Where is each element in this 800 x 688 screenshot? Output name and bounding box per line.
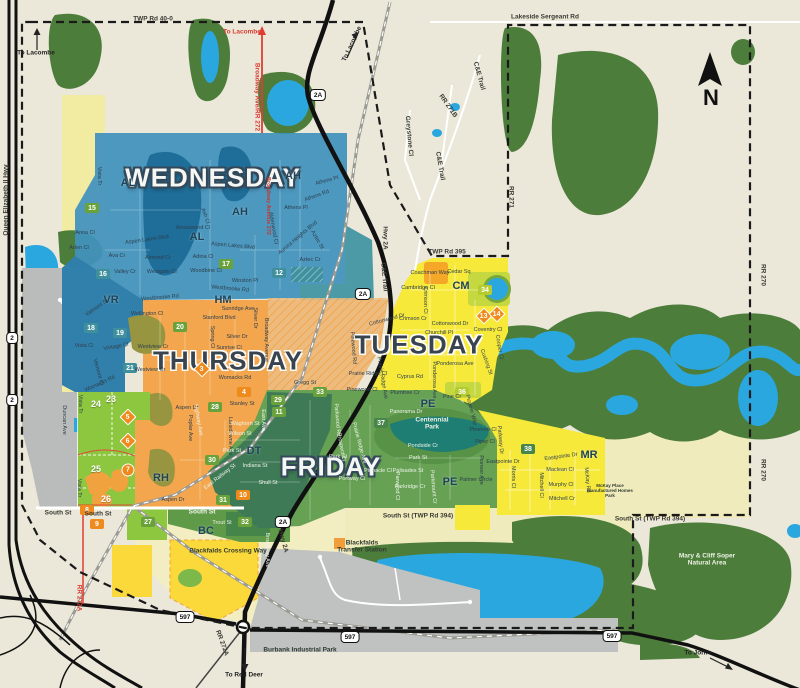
road-label: Broadway Ave/RR 272 — [254, 63, 261, 131]
street-label: Athens Pl — [315, 175, 339, 187]
road-label: South St — [189, 509, 216, 516]
street-label: Aspen Lakes Blvd — [125, 234, 169, 246]
zone-number-marker: 20 — [173, 322, 187, 332]
street-label: Valley Cr — [114, 269, 136, 275]
street-label: Stanford Blvd — [202, 315, 235, 321]
highway-shield: 597 — [341, 631, 360, 643]
street-label: Indiana St — [243, 463, 268, 469]
direction-label: To Red Deer — [225, 672, 263, 679]
street-label: Portway Cl — [339, 476, 366, 482]
place-label: Blackfalds Crossing Way — [189, 547, 266, 554]
street-label: Arlen Cl — [69, 245, 89, 251]
zone-number-marker: 38 — [521, 444, 535, 454]
zone-number-marker: 15 — [85, 203, 99, 213]
street-label: Broadway Avenue — [263, 318, 269, 362]
street-label: Silver Dr — [252, 307, 258, 328]
zone-number-marker: 28 — [208, 402, 222, 412]
street-label: Spring Cl — [209, 326, 215, 349]
road-label: C&E Trail — [472, 61, 486, 91]
zone-number-marker: 5 — [120, 409, 137, 426]
street-label: Cottonwood Dr — [432, 321, 469, 327]
street-label: Pioneer Way — [464, 394, 478, 426]
street-label: Coventry Cl — [474, 327, 503, 333]
street-label: Vintage Cl — [103, 342, 129, 352]
area-code-label: BC — [198, 525, 214, 537]
street-label: Parkway Dr — [496, 426, 504, 455]
compass-north-label: N — [703, 85, 719, 111]
street-label: Trout St — [212, 520, 231, 526]
street-label: Pine Cr — [443, 394, 461, 400]
street-label: Aspen Dr — [162, 497, 185, 503]
zone-number-marker-text: 5 — [126, 414, 130, 421]
zone-number-marker: 25 — [89, 464, 103, 474]
road-label: South St (TWP Rd 394) — [383, 513, 453, 520]
street-label: Westview Cr — [135, 367, 166, 373]
street-label: East Ave — [260, 409, 266, 431]
zone-number-marker: 32 — [238, 517, 252, 527]
zone-number-marker: 10 — [236, 490, 250, 500]
street-label: Sunridge Ave — [222, 306, 255, 312]
street-label: Highway Ave — [192, 404, 203, 436]
street-label: Waghorn St — [231, 421, 260, 427]
street-label: Pinetree Cl — [469, 427, 496, 433]
zone-number-marker-text: 14 — [493, 311, 501, 318]
place-label: Centennial Park — [409, 417, 455, 432]
area-code-label: AH — [285, 170, 301, 182]
area-code-label: AL — [121, 177, 136, 189]
street-label: Gregg St — [294, 380, 316, 386]
zone-number-marker-text: 13 — [480, 313, 488, 320]
street-label: Silver Dr — [226, 334, 247, 340]
zone-number-marker: 9 — [90, 519, 104, 529]
road-label: Greystone Cl — [404, 116, 415, 157]
day-zone-label: WEDNESDAY — [125, 163, 301, 194]
zone-number-marker: 6 — [120, 433, 137, 450]
street-label: Mitchell Cr — [549, 496, 575, 502]
street-label: Broadway Avenue 272 — [265, 177, 271, 235]
street-label: Parwood Cl — [394, 472, 400, 500]
street-label: Ava Cr — [109, 253, 126, 259]
street-label: Athens Pl — [284, 205, 308, 211]
area-code-label: CM — [452, 280, 469, 292]
street-label: Woodbine Cl — [190, 268, 221, 274]
road-label: RR 270 — [760, 459, 767, 481]
street-label: Westbrooke Rd — [141, 293, 179, 302]
zone-number-marker: 24 — [89, 399, 103, 409]
highway-shield: 597 — [176, 611, 195, 623]
street-label: Cooper Cl — [494, 334, 504, 359]
road-label: RR 271B — [437, 93, 458, 119]
area-code-label: AL — [190, 231, 205, 243]
zone-number-marker: 34 — [478, 285, 492, 295]
street-label: Cushing St — [479, 348, 494, 375]
area-code-label: PE — [443, 476, 458, 488]
place-label: Mary & Cliff Soper Natural Area — [671, 553, 743, 568]
zone-number-marker: 37 — [374, 418, 388, 428]
street-label: Poplar Ave — [187, 415, 193, 442]
highway-shield: 2 — [6, 332, 18, 344]
street-label: Eastpointe Dr — [486, 459, 519, 465]
street-label: Sunrise Cl — [216, 345, 241, 351]
street-label: Mitchell Cl — [538, 472, 544, 497]
highway-shield: 2A — [310, 89, 326, 101]
street-label: Athens Rd — [304, 189, 330, 203]
street-label: Plumtree Cr — [390, 390, 419, 396]
street-label: Stanley St — [229, 401, 254, 407]
road-label: C&E Trail — [379, 262, 388, 291]
place-label: Blackfalds Transfer Station — [336, 540, 388, 555]
street-label: Cambridge Cl — [401, 285, 435, 291]
zone-number-marker: 14 — [489, 306, 506, 323]
highway-shield: 2A — [355, 288, 371, 300]
street-label: Piper Cl — [475, 439, 495, 445]
street-label: Panorama Dr — [390, 409, 423, 415]
road-label: C&E Trail — [434, 151, 446, 181]
street-label: Ponderosa Ave — [431, 361, 437, 398]
street-label: Ash Cl — [199, 207, 210, 224]
area-code-label: DT — [247, 445, 262, 457]
direction-label: To Lacombe — [341, 25, 363, 62]
street-label: Anna Cl — [75, 230, 95, 236]
direction-label: To Lacombe — [17, 50, 55, 57]
road-label: Lakeside Sergeant Rd — [511, 14, 579, 21]
road-label: South St (TWP Rd 394) — [615, 516, 685, 523]
street-label: Womacks Rd — [219, 375, 252, 381]
street-label: Aspen Lakes Blvd — [211, 241, 255, 251]
street-label: Valmont St — [84, 298, 109, 318]
place-label: McKay Place Manufactured Homes Park — [586, 483, 634, 499]
street-label: Murphy Cl — [548, 482, 573, 488]
street-label: Park St — [409, 455, 427, 461]
street-label: Cedar Sq — [447, 269, 470, 275]
road-label: RR 270 — [760, 264, 767, 286]
street-label: Wellington Cl — [131, 311, 163, 317]
street-label: Churchill Pl — [425, 330, 453, 336]
street-label: Coachman Way — [411, 270, 450, 276]
zone-number-marker: 11 — [272, 407, 286, 417]
street-label: Morris Cl — [510, 466, 516, 488]
road-label: TWP Rd 40-0 — [133, 16, 173, 23]
zone-number-marker: 23 — [104, 394, 118, 404]
street-label: Wilson St — [228, 431, 251, 437]
road-label: RR 272A — [214, 629, 230, 657]
zone-number-marker: 16 — [96, 269, 110, 279]
highway-shield: 2 — [6, 394, 18, 406]
street-label: Vista Tr — [76, 479, 82, 498]
street-label: Aztec St — [309, 230, 324, 251]
street-label: Vista Tr — [77, 395, 83, 414]
area-code-label: MR — [580, 449, 597, 461]
road-label: South St — [85, 511, 112, 518]
area-code-label: PE — [421, 398, 436, 410]
street-label: Westview Cr — [138, 344, 169, 350]
zone-number-marker: 30 — [205, 455, 219, 465]
zone-number-marker: 27 — [141, 517, 155, 527]
street-label: Arrowwood Cl — [176, 225, 210, 231]
street-label: Cyprus Rd — [397, 374, 423, 380]
zone-number-marker: 19 — [113, 328, 127, 338]
direction-label: To Lacombe — [223, 29, 261, 36]
street-label: Shull St — [259, 480, 278, 486]
street-label: Vista Cl — [75, 343, 94, 349]
zone-number-marker: 4 — [237, 387, 251, 397]
street-label: Park St — [223, 448, 241, 454]
street-label: Vista Tr — [96, 167, 102, 186]
street-label: Adina Cl — [193, 254, 214, 260]
zone-number-marker: 29 — [271, 395, 285, 405]
road-label: South St — [45, 510, 72, 517]
road-label: Hwy 2A — [382, 226, 389, 249]
zone-number-marker-text: 6 — [126, 438, 130, 445]
zone-number-marker-text: 3 — [200, 366, 204, 373]
zone-number-marker: 7 — [122, 464, 135, 477]
street-label: Palmer Circle — [459, 477, 492, 483]
zone-number-marker: 18 — [84, 323, 98, 333]
map-labels-layer: WEDNESDAYTHURSDAYTUESDAYFRIDAYAHAHALALVR… — [0, 0, 800, 688]
street-label: Westgate Cr — [147, 269, 177, 275]
zone-number-marker: 31 — [216, 495, 230, 505]
area-code-label: RH — [153, 472, 169, 484]
street-label: East Railway St — [203, 463, 237, 491]
street-label: Eastpointe Dr — [544, 452, 578, 463]
street-label: Winston Pl — [232, 278, 258, 284]
highway-shield: 2A — [275, 516, 291, 528]
street-label: Crimson Cl — [422, 286, 428, 313]
place-label: Burbank Industrial Park — [263, 646, 336, 653]
area-code-label: AH — [232, 206, 248, 218]
street-label: Parkmount Cr — [429, 470, 438, 504]
street-label: Pinewood Cl — [347, 387, 378, 393]
street-label: Almond Cr — [145, 255, 171, 261]
road-label: Queen Elizabeth II Hwy — [3, 164, 10, 235]
road-label: RR 272A — [76, 585, 83, 612]
zone-number-marker: 12 — [272, 268, 286, 278]
direction-label: To Joffre — [684, 650, 711, 657]
street-label: Ponderosa Ave — [436, 361, 473, 367]
day-zone-label: TUESDAY — [355, 330, 484, 361]
street-label: Pondside Cr — [408, 443, 438, 449]
street-label: Aztec Cr — [299, 257, 320, 263]
street-label: Westbrooke Rd — [211, 284, 249, 293]
road-label: TWP Rd 395 — [428, 249, 465, 256]
street-label: Pinnacle Cl — [364, 468, 392, 474]
area-code-label: HM — [214, 294, 231, 306]
zone-number-marker: 26 — [99, 494, 113, 504]
waste-collection-zone-map: WEDNESDAYTHURSDAYTUESDAYFRIDAYAHAHALALVR… — [0, 0, 800, 688]
zone-number-marker: 33 — [313, 387, 327, 397]
street-label: Duncan Ave — [61, 405, 67, 435]
street-label: Maclean Cl — [546, 467, 574, 473]
highway-shield: 597 — [603, 630, 622, 642]
road-label: RR 271 — [508, 186, 515, 208]
road-label: Hwy 2A — [277, 529, 290, 553]
